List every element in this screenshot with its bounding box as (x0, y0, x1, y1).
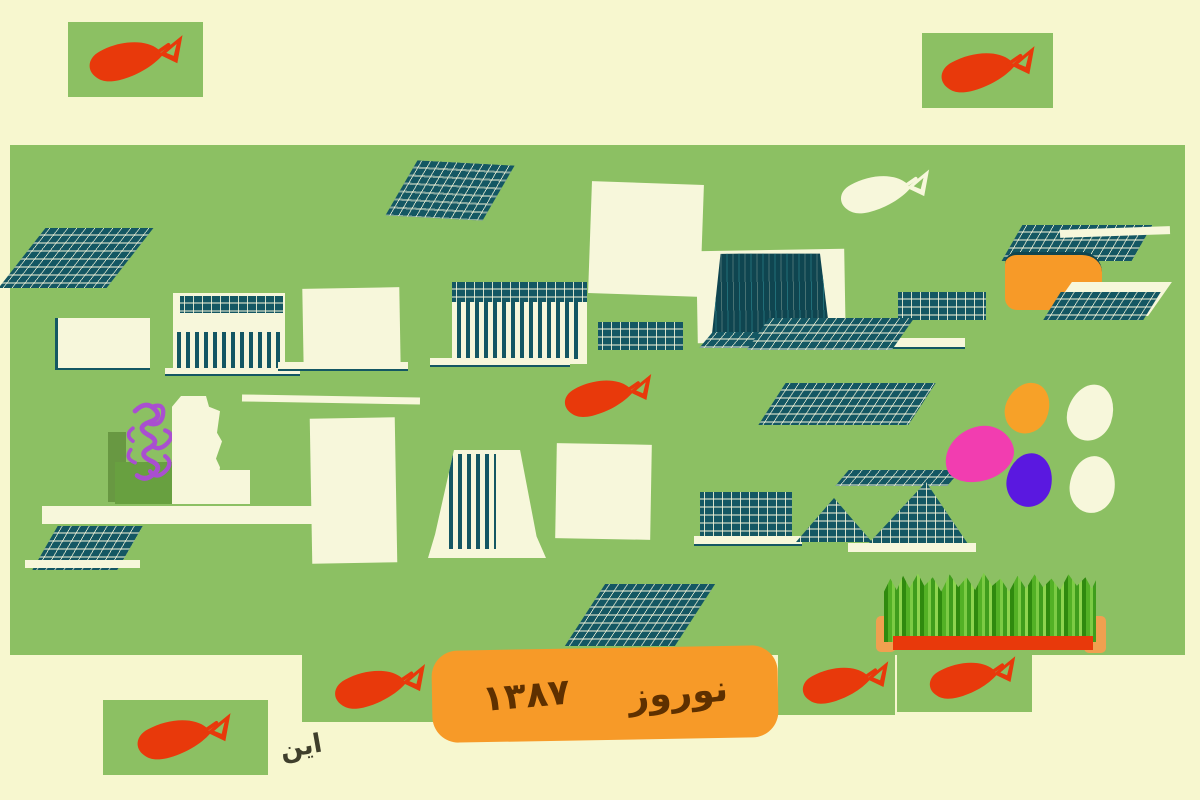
goldfish-icon (80, 30, 192, 92)
paper-sheet-2 (302, 287, 400, 371)
banner-year: ۱۳۸۷ (480, 671, 571, 720)
white-fish-icon (836, 162, 934, 226)
piano-top-band (180, 296, 283, 313)
banner-title: نوروز (626, 668, 729, 718)
plaque-top-left (68, 22, 203, 97)
book-bottom-band (1043, 292, 1160, 320)
hatch-parallelogram-right-upper (747, 318, 914, 350)
hyacinth-icon (120, 396, 178, 482)
plaque-top-right (922, 33, 1053, 108)
hatch-band-above-triangle (835, 470, 960, 486)
sabzeh-tray (893, 636, 1093, 650)
piano-doodle-left (173, 293, 285, 368)
nowruz-banner: نوروز ۱۳۸۷ (431, 645, 779, 743)
piano-keys (177, 332, 282, 368)
goldfish-icon (560, 368, 656, 428)
hatch-bar-right (898, 292, 986, 320)
goldfish-icon (330, 658, 430, 720)
goldfish-icon (932, 41, 1044, 103)
waterfall-stripes (457, 302, 581, 359)
vase-foot (198, 470, 250, 504)
base-streak-waterfall (430, 358, 570, 367)
waterfall-lower-stripes (449, 454, 496, 549)
paper-sheet-under-fish (555, 443, 652, 540)
waterfall-top-band (452, 282, 587, 302)
base-streak-bottom-center (694, 536, 802, 546)
plaque-bottom-left (103, 700, 268, 775)
paper-sheet-big-center (588, 181, 704, 297)
cream-bar-bottom-left (42, 506, 327, 524)
goldfish-icon (125, 708, 243, 770)
streak-bottom-left (25, 560, 140, 568)
signature-scribble: این (278, 729, 325, 766)
goldfish-icon (925, 650, 1020, 710)
hatch-rect-bottom-center (700, 492, 792, 538)
hatch-parallelogram-right-lower (758, 383, 935, 425)
striped-bar-center (598, 322, 683, 350)
cream-column (310, 417, 398, 563)
base-streak-2 (278, 362, 408, 371)
base-streak-triangles (848, 543, 976, 552)
waterfall-doodle-center (452, 282, 587, 364)
goldfish-icon (798, 655, 893, 715)
paper-sheet-left (55, 318, 150, 370)
